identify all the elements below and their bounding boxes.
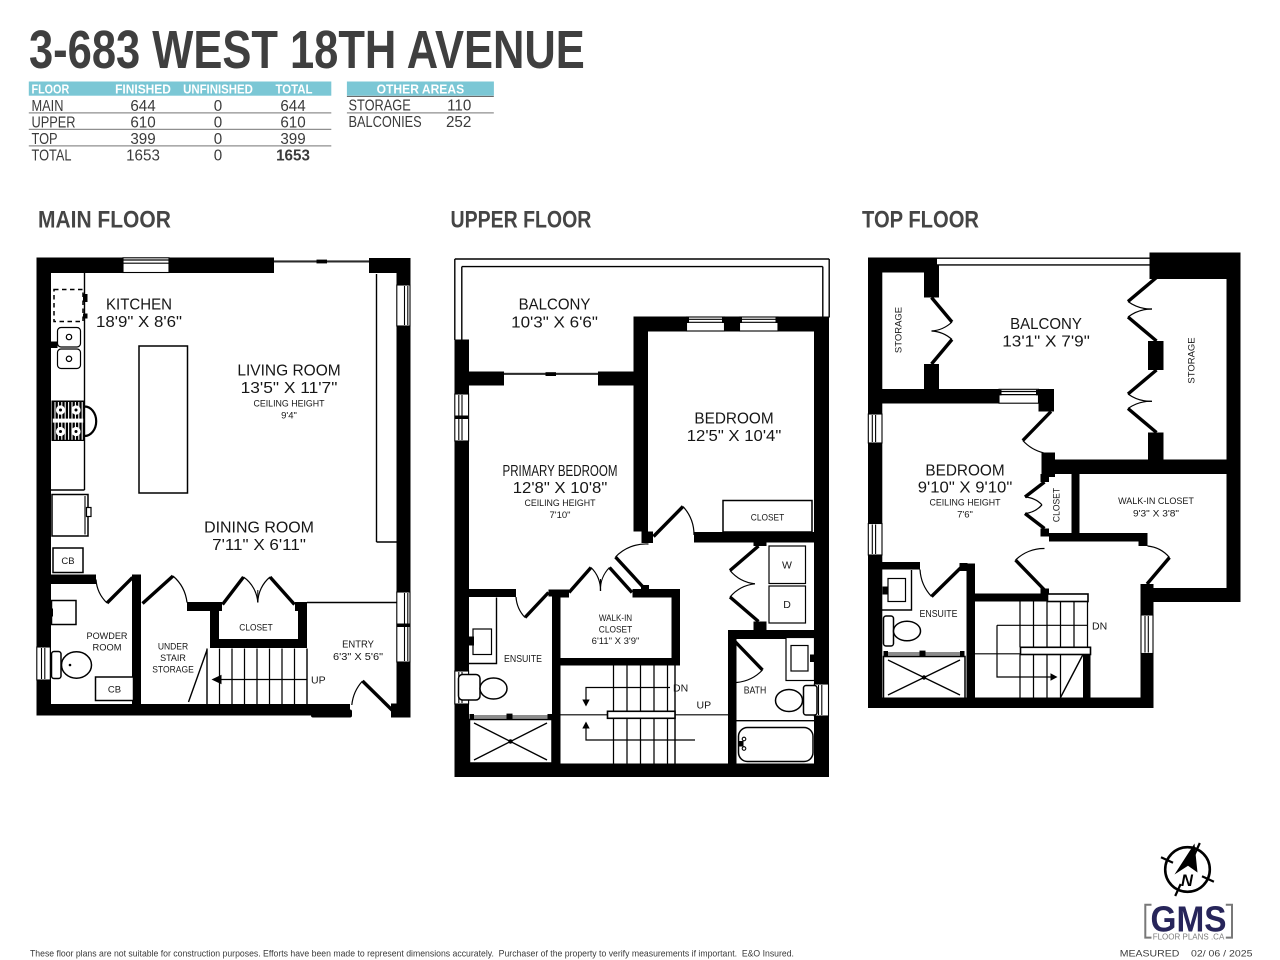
svg-text:CB: CB (108, 685, 121, 696)
svg-text:WALK-IN: WALK-IN (599, 612, 632, 623)
svg-text:STORAGE: STORAGE (1187, 337, 1198, 383)
svg-text:WALK-IN CLOSET: WALK-IN CLOSET (1118, 496, 1194, 506)
svg-text:18'9" X 8'6": 18'9" X 8'6" (96, 314, 182, 331)
svg-text:TOP FLOOR: TOP FLOOR (862, 206, 979, 233)
svg-text:1653: 1653 (126, 147, 160, 164)
svg-text:N: N (1181, 872, 1194, 890)
svg-text:ROOM: ROOM (93, 641, 122, 652)
svg-text:CLOSET: CLOSET (751, 512, 785, 523)
svg-text:LIVING ROOM: LIVING ROOM (237, 363, 340, 380)
svg-text:UP: UP (697, 700, 712, 712)
svg-text:9'4": 9'4" (281, 411, 297, 422)
svg-text:UPPER FLOOR: UPPER FLOOR (451, 205, 592, 233)
svg-text:DN: DN (673, 683, 688, 695)
svg-text:These floor plans are not suit: These floor plans are not suitable for c… (30, 948, 794, 958)
svg-text:110: 110 (447, 97, 472, 114)
svg-text:CB: CB (61, 556, 74, 567)
svg-text:UP: UP (311, 675, 326, 687)
svg-text:0: 0 (214, 147, 223, 164)
svg-text:BALCONY: BALCONY (1010, 316, 1082, 333)
svg-text:FLOOR PLANS .CA: FLOOR PLANS .CA (1153, 933, 1225, 942)
svg-text:ENTRY: ENTRY (342, 639, 374, 651)
svg-text:7'11" X 6'11": 7'11" X 6'11" (212, 537, 306, 554)
svg-text:KITCHEN: KITCHEN (106, 296, 172, 313)
svg-text:MAIN FLOOR: MAIN FLOOR (38, 205, 171, 233)
svg-text:CEILING HEIGHT: CEILING HEIGHT (253, 398, 324, 408)
svg-text:6'11" X 3'9": 6'11" X 3'9" (592, 636, 640, 647)
svg-text:BEDROOM: BEDROOM (925, 462, 1004, 479)
svg-text:PRIMARY BEDROOM: PRIMARY BEDROOM (503, 462, 618, 479)
svg-text:STORAGE: STORAGE (894, 307, 905, 353)
svg-text:9'10" X 9'10": 9'10" X 9'10" (918, 479, 1013, 496)
svg-text:TOTAL: TOTAL (32, 147, 72, 165)
svg-text:1653: 1653 (276, 147, 310, 164)
svg-text:BALCONIES: BALCONIES (349, 114, 422, 132)
svg-text:6'3" X 5'6": 6'3" X 5'6" (333, 651, 383, 663)
svg-text:7'10": 7'10" (549, 510, 570, 521)
svg-text:D: D (783, 599, 791, 611)
svg-text:7'6": 7'6" (957, 510, 973, 521)
svg-text:TOTAL: TOTAL (275, 82, 313, 97)
svg-text:UNDER: UNDER (158, 641, 189, 652)
svg-text:W: W (782, 560, 792, 572)
svg-text:CEILING HEIGHT: CEILING HEIGHT (929, 497, 1000, 507)
svg-text:DN: DN (1092, 621, 1107, 633)
svg-text:252: 252 (446, 114, 471, 131)
svg-text:FINISHED: FINISHED (115, 82, 171, 97)
svg-text:BATH: BATH (744, 685, 767, 697)
svg-text:ENSUITE: ENSUITE (920, 608, 958, 620)
svg-text:3-683 WEST 18TH AVENUE: 3-683 WEST 18TH AVENUE (29, 21, 585, 80)
svg-text:STAIR: STAIR (160, 653, 186, 663)
svg-text:STORAGE: STORAGE (152, 664, 194, 675)
svg-text:CLOSET: CLOSET (1051, 487, 1061, 522)
svg-text:UNFINISHED: UNFINISHED (183, 82, 253, 97)
svg-text:CLOSET: CLOSET (599, 624, 633, 635)
svg-text:STORAGE: STORAGE (349, 97, 412, 115)
svg-text:CEILING HEIGHT: CEILING HEIGHT (524, 498, 595, 508)
svg-text:ENSUITE: ENSUITE (504, 653, 542, 665)
svg-text:CLOSET: CLOSET (239, 622, 273, 633)
svg-text:DINING ROOM: DINING ROOM (204, 520, 314, 537)
svg-text:FLOOR: FLOOR (32, 81, 70, 96)
svg-text:POWDER: POWDER (87, 631, 128, 641)
svg-text:BALCONY: BALCONY (519, 296, 591, 313)
svg-text:MEASURED 02/ 06 / 2025: MEASURED 02/ 06 / 2025 (1120, 949, 1253, 959)
svg-text:13'5" X 11'7": 13'5" X 11'7" (241, 380, 338, 397)
svg-text:13'1" X 7'9": 13'1" X 7'9" (1002, 333, 1090, 350)
svg-text:OTHER AREAS: OTHER AREAS (377, 82, 465, 96)
svg-text:BEDROOM: BEDROOM (694, 410, 773, 427)
svg-text:10'3" X 6'6": 10'3" X 6'6" (511, 314, 598, 331)
svg-text:12'8" X 10'8": 12'8" X 10'8" (513, 480, 608, 497)
svg-text:9'3" X 3'8": 9'3" X 3'8" (1133, 509, 1180, 520)
svg-text:12'5" X 10'4": 12'5" X 10'4" (687, 428, 782, 445)
